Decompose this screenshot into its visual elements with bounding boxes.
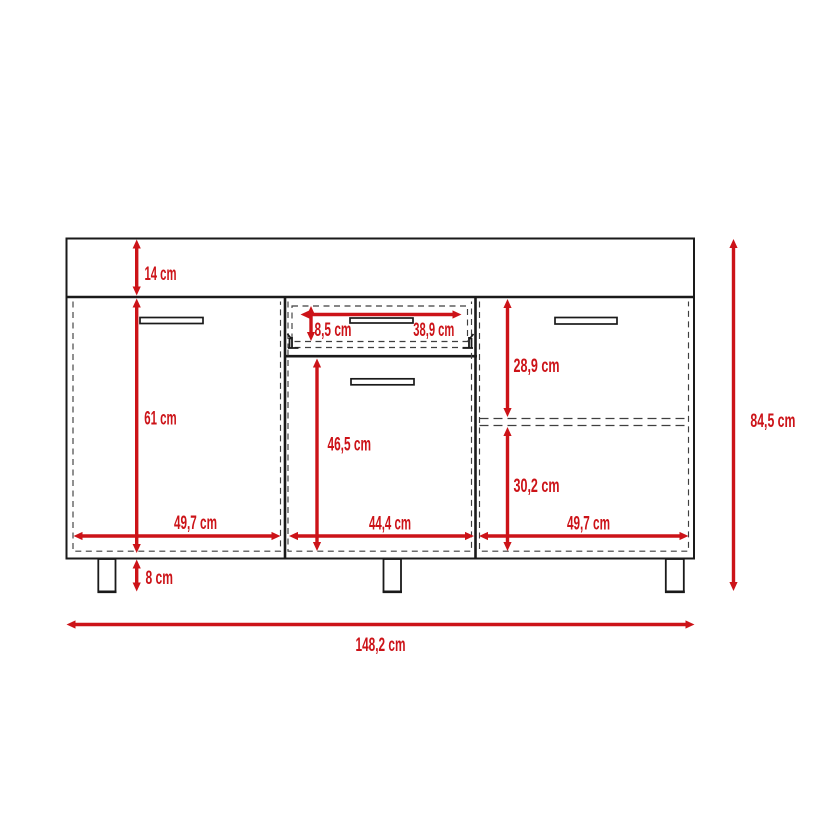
svg-text:61 cm: 61 cm — [144, 408, 176, 430]
svg-text:38,9 cm: 38,9 cm — [413, 319, 454, 341]
svg-text:14 cm: 14 cm — [145, 263, 177, 285]
svg-text:46,5 cm: 46,5 cm — [328, 434, 372, 456]
svg-text:148,2 cm: 148,2 cm — [356, 634, 406, 656]
svg-text:49,7 cm: 49,7 cm — [567, 513, 610, 535]
svg-text:49,7 cm: 49,7 cm — [174, 512, 217, 534]
svg-text:8,5 cm: 8,5 cm — [315, 319, 352, 341]
svg-text:30,2 cm: 30,2 cm — [514, 475, 560, 497]
svg-text:44,4 cm: 44,4 cm — [369, 513, 411, 535]
svg-text:8 cm: 8 cm — [146, 567, 174, 589]
svg-text:28,9 cm: 28,9 cm — [514, 355, 560, 377]
svg-text:84,5 cm: 84,5 cm — [750, 410, 795, 432]
